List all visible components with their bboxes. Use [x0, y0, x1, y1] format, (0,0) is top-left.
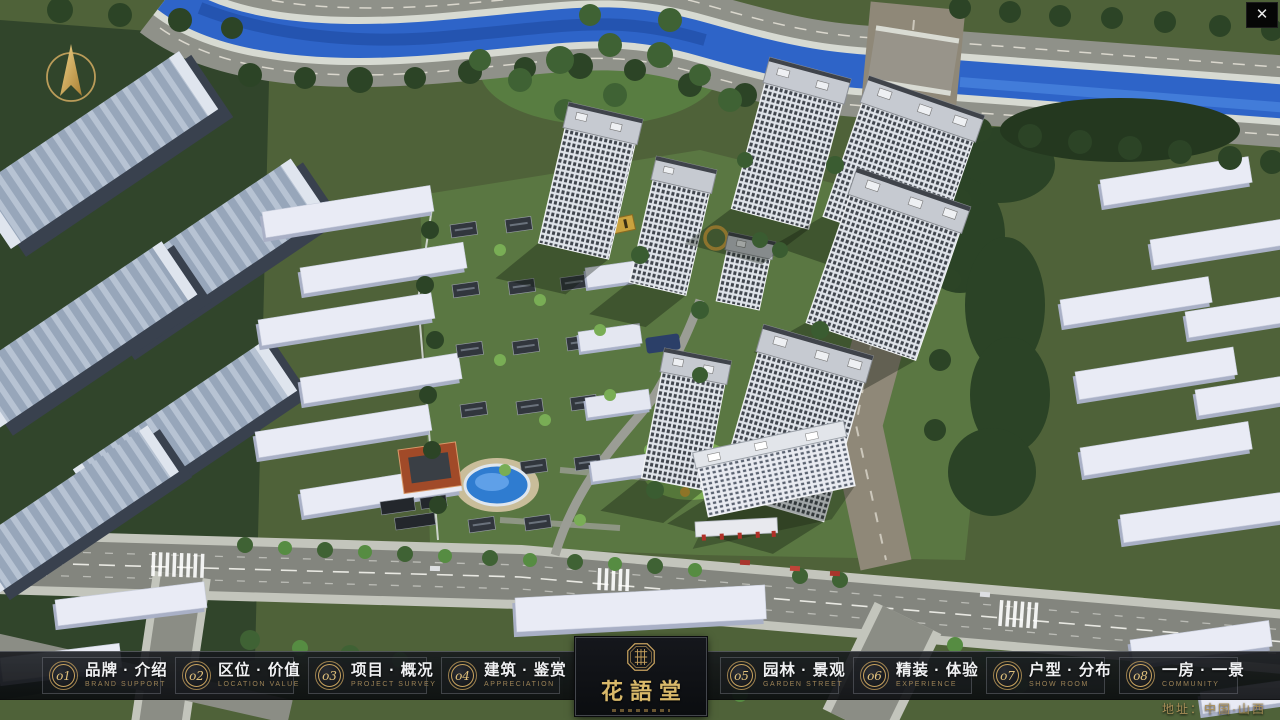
nav-item-architecture[interactable]: o4 建筑 · 鉴赏 APPRECIATION: [441, 657, 560, 694]
nav-sublabel: EXPERIENCE: [896, 681, 967, 689]
nav-label: 区位 · 价值: [218, 662, 289, 680]
nav-sublabel: BRAND SUPPORT: [85, 681, 156, 689]
nav-label: 建筑 · 鉴赏: [484, 662, 555, 680]
logo-deco-line: [612, 709, 670, 712]
nav-label: 户型 · 分布: [1029, 662, 1100, 680]
nav-item-location[interactable]: o2 区位 · 价值 LOCATION VALUE: [175, 657, 294, 694]
close-icon: ✕: [1256, 6, 1269, 23]
nav-label: 一房 · 一景: [1162, 662, 1233, 680]
nav-sublabel: COMMUNITY: [1162, 681, 1233, 689]
address-text: 地址：中国·山西: [1162, 700, 1266, 717]
nav-item-garden[interactable]: o5 园林 · 景观 GARDEN STREET: [720, 657, 839, 694]
nav-badge-01: o1: [49, 661, 78, 690]
nav-item-brand[interactable]: o1 品牌 · 介绍 BRAND SUPPORT: [42, 657, 161, 694]
project-title: 花語堂: [594, 674, 688, 706]
nav-item-project[interactable]: o3 项目 · 概况 PROJECT SURVEY: [308, 657, 427, 694]
nav-sublabel: GARDEN STREET: [763, 681, 834, 689]
nav-sublabel: APPRECIATION: [484, 681, 555, 689]
nav-label: 精装 · 体验: [896, 662, 967, 680]
aerial-masterplan-render: [0, 0, 1280, 720]
nav-badge-05: o5: [727, 661, 756, 690]
nav-badge-07: o7: [993, 661, 1022, 690]
nav-badge-03: o3: [315, 661, 344, 690]
nav-item-interior[interactable]: o6 精装 · 体验 EXPERIENCE: [853, 657, 972, 694]
nav-badge-06: o6: [860, 661, 889, 690]
nav-sublabel: PROJECT SURVEY: [351, 681, 422, 689]
nav-label: 项目 · 概况: [351, 662, 422, 680]
nav-badge-08: o8: [1126, 661, 1155, 690]
nav-item-views[interactable]: o8 一房 · 一景 COMMUNITY: [1119, 657, 1238, 694]
nav-item-floorplan[interactable]: o7 户型 · 分布 SHOW ROOM: [986, 657, 1105, 694]
nav-label: 园林 · 景观: [763, 662, 834, 680]
project-logo[interactable]: 花語堂: [575, 637, 707, 716]
app-window: ✕ o1 品牌 · 介绍 BRAND SUPPORT o2 区位 · 价值 LO…: [0, 0, 1280, 720]
nav-badge-04: o4: [448, 661, 477, 690]
nav-sublabel: LOCATION VALUE: [218, 681, 289, 689]
compass-icon: [38, 40, 104, 108]
close-button[interactable]: ✕: [1246, 2, 1278, 28]
nav-badge-02: o2: [182, 661, 211, 690]
nav-label: 品牌 · 介绍: [85, 662, 156, 680]
nav-sublabel: SHOW ROOM: [1029, 681, 1100, 689]
seal-icon: [626, 642, 656, 672]
